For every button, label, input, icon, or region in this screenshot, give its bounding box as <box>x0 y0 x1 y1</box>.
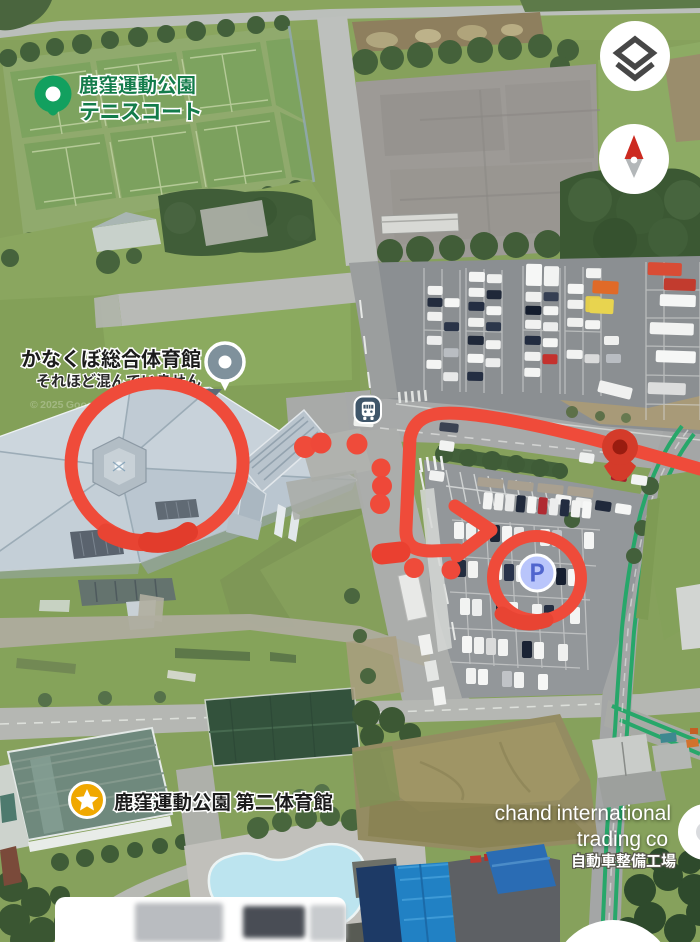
svg-text:trading co: trading co <box>577 823 668 853</box>
svg-text:かなくぼ総合体育館: かなくぼ総合体育館 <box>21 343 201 372</box>
svg-text:P: P <box>529 554 545 589</box>
svg-text:鹿窪運動公園: 鹿窪運動公園 <box>79 69 196 98</box>
svg-text:© 2025 Goog: © 2025 Goog <box>30 397 93 412</box>
svg-text:テニスコート: テニスコート <box>79 96 202 126</box>
svg-text:自動車整備工場: 自動車整備工場 <box>571 850 676 871</box>
svg-text:鹿窪運動公園 第二体育館: 鹿窪運動公園 第二体育館 <box>114 786 333 815</box>
